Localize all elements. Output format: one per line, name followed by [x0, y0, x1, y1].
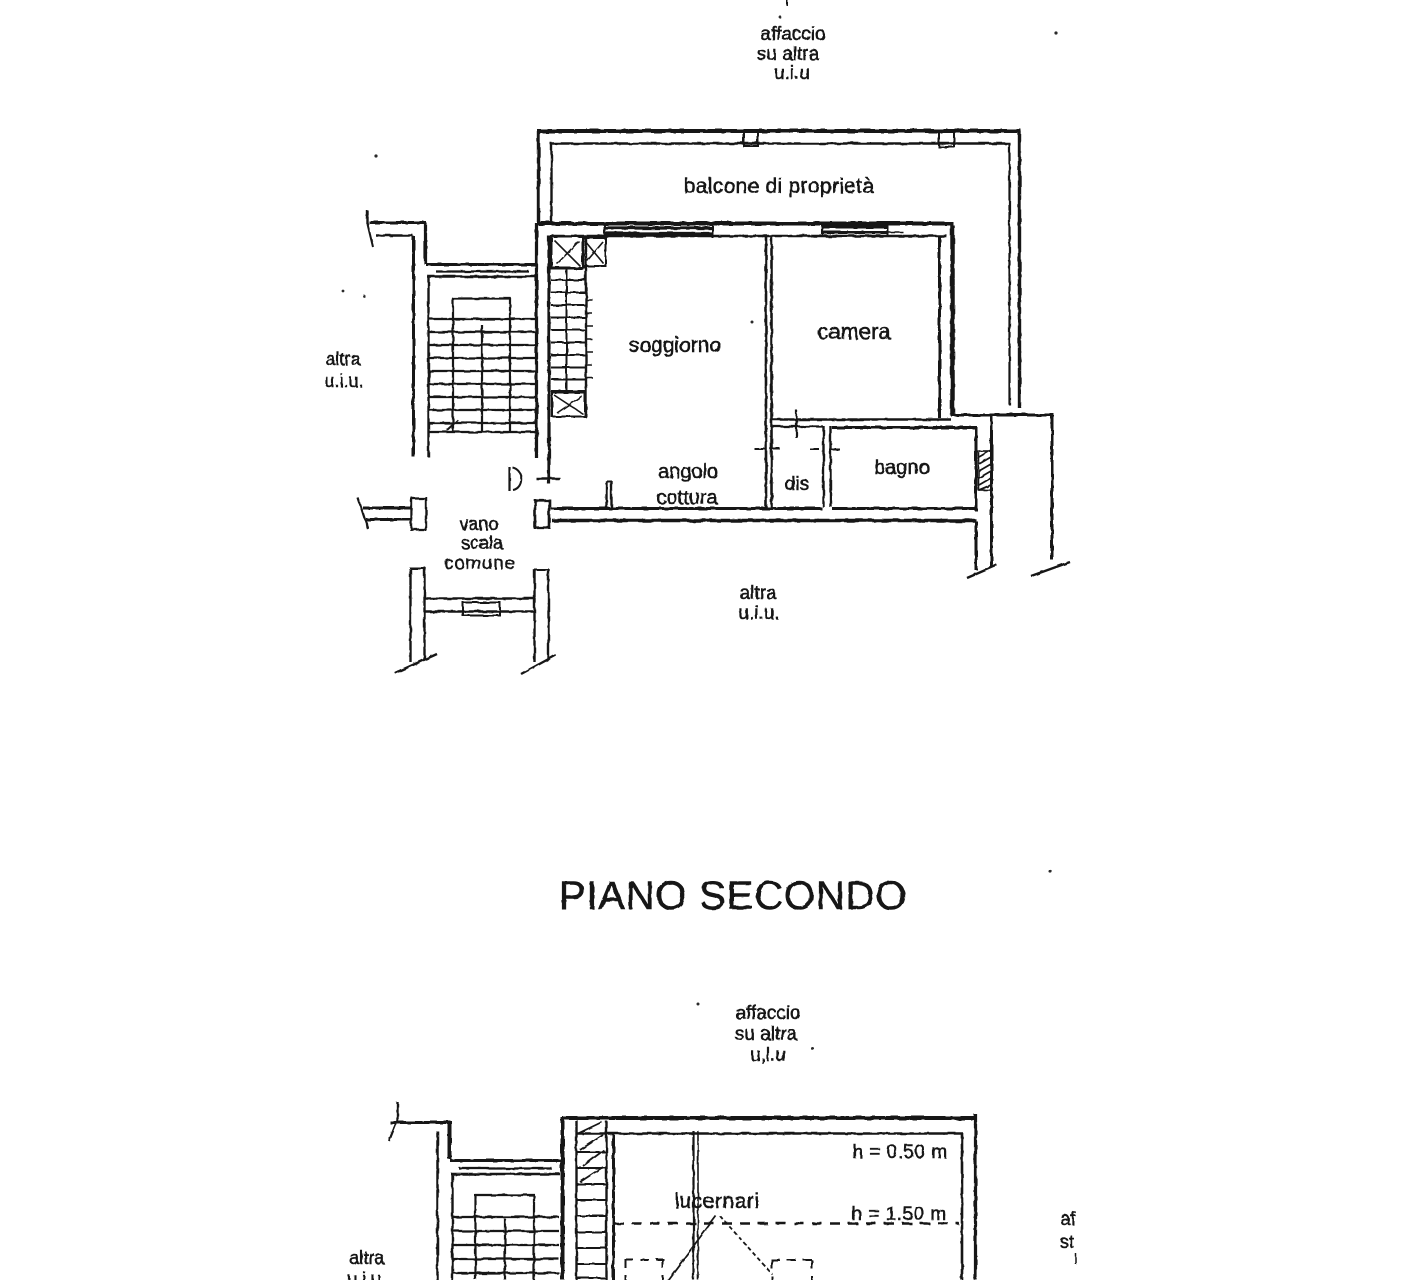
svg-text:altra: altra: [349, 1248, 385, 1268]
svg-text:PIANO SECONDO: PIANO SECONDO: [559, 874, 907, 918]
svg-text:altra: altra: [325, 349, 361, 369]
svg-text:su altra: su altra: [735, 1024, 798, 1045]
svg-text:vano: vano: [459, 514, 498, 534]
svg-text:u.i.u: u.i.u: [774, 63, 810, 84]
svg-text:camera: camera: [817, 319, 891, 344]
svg-text:su altra: su altra: [757, 44, 820, 65]
svg-text:affaccio: affaccio: [735, 1003, 800, 1024]
svg-text:u.i.u.: u.i.u.: [738, 603, 779, 624]
svg-text:angolo: angolo: [658, 461, 718, 483]
svg-text:h = 1.50 m: h = 1.50 m: [851, 1204, 946, 1225]
svg-text:affaccio: affaccio: [760, 24, 825, 45]
svg-text:u.i.u.: u.i.u.: [324, 371, 363, 391]
svg-text:u,l.u: u,l.u: [750, 1045, 786, 1066]
svg-text:scala: scala: [461, 533, 504, 553]
svg-text:comune: comune: [444, 552, 516, 573]
svg-text:dis: dis: [785, 474, 809, 495]
svg-text:soggiorno: soggiorno: [629, 334, 721, 357]
svg-text:bagno: bagno: [874, 457, 930, 479]
svg-text:altra: altra: [740, 583, 777, 604]
svg-text:lucernari: lucernari: [674, 1190, 759, 1213]
svg-text:cottura: cottura: [656, 487, 718, 509]
svg-text:u.i.u: u.i.u: [347, 1269, 381, 1280]
svg-text:balcone di proprietà: balcone di proprietà: [684, 175, 874, 198]
svg-text:h = 0.50 m: h = 0.50 m: [852, 1142, 947, 1163]
svg-text:af: af: [1060, 1209, 1076, 1229]
svg-text:st: st: [1060, 1232, 1074, 1252]
